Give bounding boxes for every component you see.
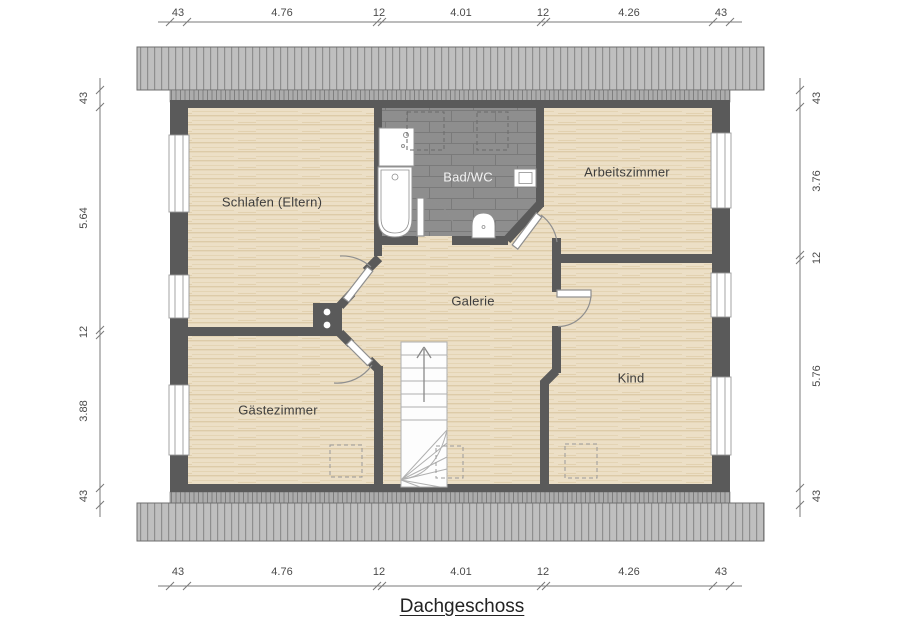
dim-top-2: 12 <box>373 7 385 19</box>
dim-right-3: 5.76 <box>811 365 823 386</box>
dim-bottom-6: 43 <box>715 566 727 578</box>
floor-plan-drawing <box>0 0 900 638</box>
dim-right-2: 12 <box>811 252 823 264</box>
dim-left-1: 5.64 <box>78 207 90 228</box>
room-label-bad: Bad/WC <box>443 170 493 185</box>
window-right-2 <box>711 273 731 317</box>
dim-bottom-0: 43 <box>172 566 184 578</box>
window-right-3 <box>711 377 731 455</box>
dim-bottom-2: 12 <box>373 566 385 578</box>
dim-right-0: 43 <box>811 92 823 104</box>
chimney-block <box>313 303 342 336</box>
room-label-gaestezimmer: Gästezimmer <box>238 403 318 418</box>
dim-top-6: 43 <box>715 7 727 19</box>
dim-bottom-4: 12 <box>537 566 549 578</box>
dim-left-2: 12 <box>78 326 90 338</box>
page-title: Dachgeschoss <box>400 596 525 618</box>
dim-top-5: 4.26 <box>618 7 639 19</box>
dim-top-3: 4.01 <box>450 7 471 19</box>
floor-plan-page: Schlafen (Eltern) Bad/WC Arbeitszimmer G… <box>0 0 900 638</box>
staircase <box>401 342 447 487</box>
window-right-1 <box>711 133 731 208</box>
dim-right-4: 43 <box>811 490 823 502</box>
window-left-2 <box>169 275 189 318</box>
room-label-galerie: Galerie <box>451 294 494 309</box>
roof-strip-top <box>137 47 764 102</box>
dim-left-3: 3.88 <box>78 400 90 421</box>
shower-basin-icon <box>379 128 414 166</box>
dim-top-0: 43 <box>172 7 184 19</box>
dim-left-0: 43 <box>78 92 90 104</box>
dim-top-1: 4.76 <box>271 7 292 19</box>
dim-bottom-3: 4.01 <box>450 566 471 578</box>
dim-bottom-1: 4.76 <box>271 566 292 578</box>
toilet-icon <box>472 213 495 238</box>
dim-left-4: 43 <box>78 490 90 502</box>
room-label-schlafen: Schlafen (Eltern) <box>222 195 322 210</box>
window-left-1 <box>169 135 189 212</box>
dim-top-4: 12 <box>537 7 549 19</box>
bathtub-icon <box>378 167 412 237</box>
window-left-3 <box>169 385 189 455</box>
dim-right-1: 3.76 <box>811 170 823 191</box>
roof-strip-bottom <box>137 492 764 541</box>
room-label-arbeitszimmer: Arbeitszimmer <box>584 165 670 180</box>
dim-bottom-5: 4.26 <box>618 566 639 578</box>
room-label-kind: Kind <box>618 371 645 386</box>
sink-icon <box>514 169 536 187</box>
